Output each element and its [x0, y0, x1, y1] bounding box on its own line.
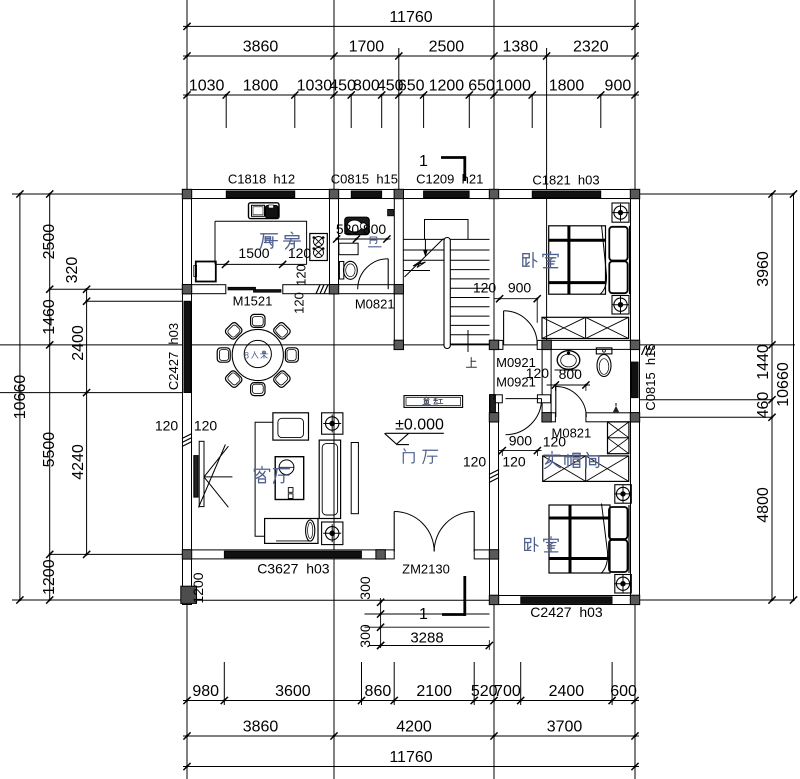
svg-text:M0921: M0921 — [496, 375, 536, 390]
svg-text:300: 300 — [357, 576, 373, 600]
svg-text:10660: 10660 — [12, 375, 29, 420]
svg-text:M0821: M0821 — [552, 426, 592, 441]
svg-text:120: 120 — [294, 264, 309, 286]
svg-text:C1209 h21: C1209 h21 — [416, 172, 483, 187]
svg-text:120: 120 — [502, 453, 526, 469]
svg-text:3600: 3600 — [275, 683, 311, 700]
svg-text:C2427 h03: C2427 h03 — [166, 323, 181, 390]
svg-text:C2427 h03: C2427 h03 — [530, 604, 603, 620]
svg-text:C0815 h15: C0815 h15 — [643, 343, 658, 410]
svg-text:320: 320 — [64, 257, 81, 284]
svg-text:120: 120 — [288, 245, 312, 261]
svg-text:2500: 2500 — [41, 224, 58, 260]
svg-text:3960: 3960 — [755, 251, 772, 287]
svg-text:1440: 1440 — [755, 344, 772, 380]
svg-text:520: 520 — [336, 221, 360, 237]
svg-text:1030: 1030 — [297, 78, 333, 95]
svg-text:1: 1 — [419, 606, 428, 623]
svg-text:800: 800 — [559, 366, 583, 382]
svg-text:M1521: M1521 — [233, 294, 273, 309]
svg-text:120: 120 — [194, 418, 218, 434]
svg-text:C3627 h03: C3627 h03 — [257, 561, 330, 577]
svg-text:1460: 1460 — [41, 299, 58, 335]
svg-text:ZM2130: ZM2130 — [402, 562, 450, 577]
svg-text:4240: 4240 — [70, 444, 87, 480]
svg-text:2100: 2100 — [416, 683, 452, 700]
svg-text:M0921: M0921 — [496, 355, 536, 370]
svg-text:1200: 1200 — [429, 78, 465, 95]
svg-text:2400: 2400 — [549, 683, 585, 700]
svg-text:650: 650 — [398, 78, 425, 95]
svg-text:3860: 3860 — [243, 719, 279, 736]
svg-text:860: 860 — [365, 683, 392, 700]
svg-text:980: 980 — [192, 683, 219, 700]
svg-text:1500: 1500 — [238, 245, 269, 261]
svg-text:120: 120 — [463, 453, 487, 469]
svg-text:1800: 1800 — [243, 78, 279, 95]
svg-text:900: 900 — [509, 432, 533, 448]
svg-text:700: 700 — [494, 683, 521, 700]
svg-text:900: 900 — [605, 78, 632, 95]
svg-text:3288: 3288 — [410, 629, 443, 646]
svg-text:2320: 2320 — [573, 39, 609, 56]
svg-text:1380: 1380 — [503, 39, 539, 56]
svg-text:800: 800 — [363, 221, 387, 237]
svg-text:120: 120 — [473, 279, 497, 295]
svg-text:2500: 2500 — [429, 39, 465, 56]
svg-text:900: 900 — [508, 279, 532, 295]
svg-text:120: 120 — [155, 418, 179, 434]
svg-text:±0.000: ±0.000 — [395, 417, 444, 434]
svg-text:120: 120 — [292, 292, 307, 314]
svg-text:C0815 h15: C0815 h15 — [331, 172, 398, 187]
svg-text:4200: 4200 — [396, 719, 432, 736]
svg-text:1200: 1200 — [41, 559, 58, 595]
svg-text:10660: 10660 — [775, 362, 792, 407]
svg-text:1: 1 — [419, 153, 428, 170]
svg-text:11760: 11760 — [389, 9, 432, 26]
svg-text:1000: 1000 — [495, 78, 531, 95]
svg-text:8: 8 — [244, 350, 249, 360]
svg-text:600: 600 — [610, 683, 637, 700]
svg-text:450: 450 — [329, 78, 356, 95]
svg-text:1200: 1200 — [190, 572, 206, 603]
svg-text:4800: 4800 — [755, 487, 772, 523]
svg-text:5500: 5500 — [41, 432, 58, 468]
svg-text:C1821 h03: C1821 h03 — [532, 173, 599, 188]
svg-text:2400: 2400 — [70, 325, 87, 361]
svg-text:300: 300 — [357, 624, 373, 648]
svg-text:1030: 1030 — [189, 78, 225, 95]
svg-text:650: 650 — [468, 78, 495, 95]
svg-text:800: 800 — [353, 78, 380, 95]
svg-text:460: 460 — [755, 392, 772, 419]
svg-text:C1818 h12: C1818 h12 — [228, 172, 295, 187]
svg-text:3700: 3700 — [547, 719, 583, 736]
svg-text:1700: 1700 — [349, 39, 385, 56]
svg-text:11760: 11760 — [389, 749, 432, 766]
svg-text:1800: 1800 — [549, 78, 585, 95]
svg-text:M0821: M0821 — [355, 296, 395, 311]
svg-text:3860: 3860 — [243, 39, 279, 56]
